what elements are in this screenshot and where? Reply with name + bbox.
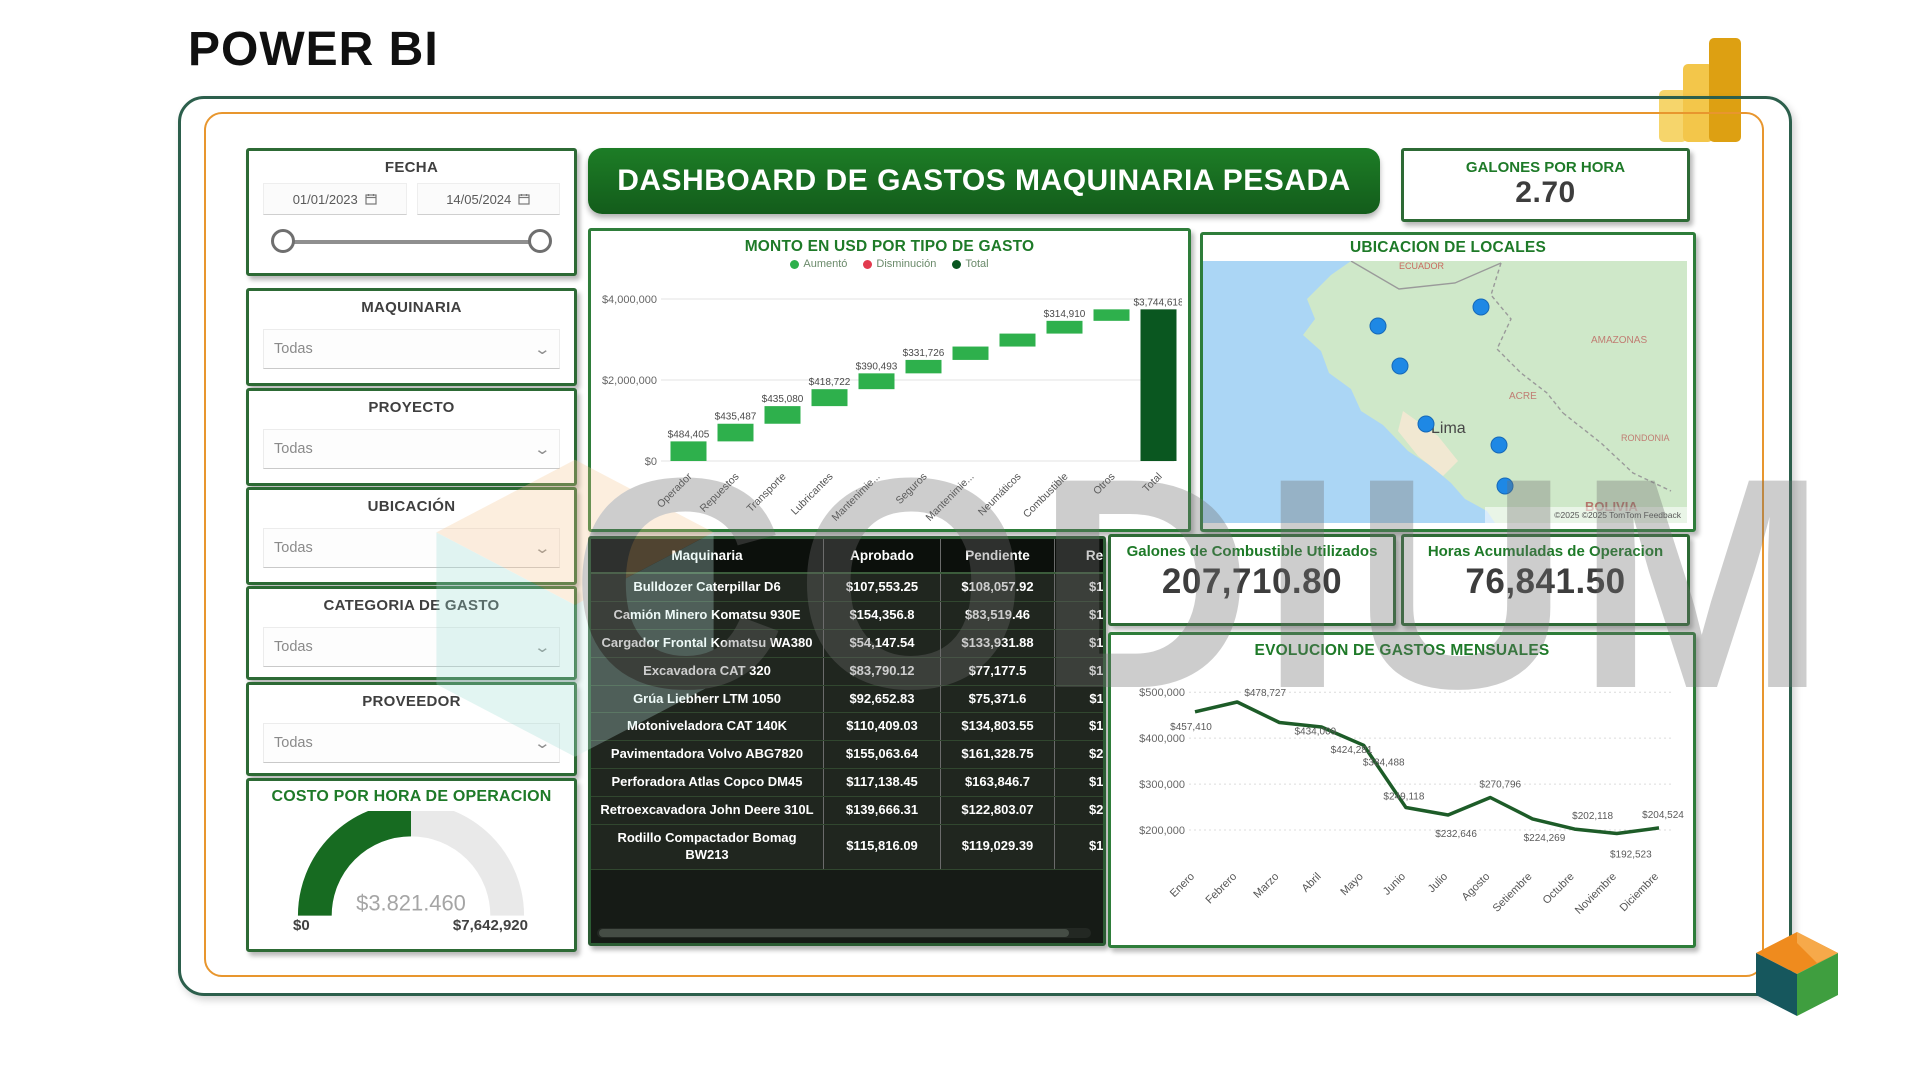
chevron-down-icon: ⌄ bbox=[534, 340, 552, 358]
table-header-rechazado[interactable]: Rechazado bbox=[1055, 539, 1107, 573]
filter-dropdown[interactable]: Todas ⌄ bbox=[263, 627, 560, 667]
waterfall-category-label: Mantenimie... bbox=[830, 471, 883, 521]
waterfall-bar[interactable] bbox=[1000, 334, 1036, 347]
filter-label: MAQUINARIA bbox=[249, 291, 574, 316]
table-cell: $110,409.03 bbox=[824, 713, 941, 741]
filter-selected-value: Todas bbox=[274, 540, 313, 556]
table-cell: $108,057.92 bbox=[941, 573, 1055, 601]
legend-item[interactable]: Aumentó bbox=[790, 258, 847, 270]
legend-dot-icon bbox=[863, 260, 872, 269]
svg-text:$270,796: $270,796 bbox=[1479, 779, 1521, 790]
table-cell: $132,062.4 bbox=[1055, 713, 1107, 741]
filter-dropdown[interactable]: Todas ⌄ bbox=[263, 429, 560, 469]
waterfall-category-label: Repuestos bbox=[698, 471, 742, 515]
filter-selected-value: Todas bbox=[274, 735, 313, 751]
line-chart: $200,000$300,000$400,000$500,000$457,410… bbox=[1111, 669, 1687, 941]
table-cell: $163,846.7 bbox=[941, 769, 1055, 797]
svg-text:$3,744,618: $3,744,618 bbox=[1133, 297, 1182, 308]
table-cell: $133,759.5 bbox=[1055, 825, 1107, 870]
kpi-galones-hora-title: GALONES POR HORA bbox=[1404, 151, 1687, 178]
waterfall-bar[interactable] bbox=[906, 360, 942, 373]
svg-text:$202,118: $202,118 bbox=[1572, 811, 1613, 822]
month-label: Mayo bbox=[1338, 871, 1366, 899]
map-location-marker[interactable] bbox=[1497, 478, 1513, 494]
date-slider-handle-left[interactable] bbox=[271, 229, 295, 253]
page-title: POWER BI bbox=[188, 22, 439, 77]
svg-text:$224,269: $224,269 bbox=[1524, 833, 1566, 844]
waterfall-bar[interactable] bbox=[1094, 309, 1130, 320]
gauge-value: $3.821.460 bbox=[356, 891, 466, 916]
table-row[interactable]: Motoniveladora CAT 140K$110,409.03$134,8… bbox=[591, 713, 1106, 741]
waterfall-category-label: Total bbox=[1140, 471, 1164, 495]
chevron-down-icon: ⌄ bbox=[534, 734, 552, 752]
svg-text:$192,523: $192,523 bbox=[1610, 849, 1652, 860]
month-label: Marzo bbox=[1251, 871, 1281, 901]
legend-item[interactable]: Total bbox=[952, 258, 988, 270]
table-cell: $83,790.12 bbox=[824, 657, 941, 685]
svg-text:$331,726: $331,726 bbox=[903, 348, 945, 359]
table-cell: $119,029.39 bbox=[941, 825, 1055, 870]
map-label-amazonas: AMAZONAS bbox=[1591, 335, 1647, 346]
end-date-input[interactable]: 14/05/2024 bbox=[417, 183, 561, 215]
table-cell: Pavimentadora Volvo ABG7820 bbox=[591, 741, 824, 769]
svg-text:$434,009: $434,009 bbox=[1295, 727, 1337, 738]
table-cell: $117,138.45 bbox=[824, 769, 941, 797]
table-cell: $208,639.3 bbox=[1055, 797, 1107, 825]
filter-card-proveedor: PROVEEDOR Todas ⌄ bbox=[246, 682, 577, 776]
table-cell: $128,293.6 bbox=[1055, 657, 1107, 685]
svg-text:$478,727: $478,727 bbox=[1244, 688, 1286, 699]
waterfall-bar[interactable] bbox=[765, 406, 801, 424]
line-chart-title: EVOLUCION DE GASTOS MENSUALES bbox=[1111, 635, 1693, 660]
map-label-ecuador: ECUADOR bbox=[1399, 261, 1445, 271]
map-attribution: ©2025 ©2025 TomTom Feedback bbox=[1554, 510, 1681, 520]
table-row[interactable]: Pavimentadora Volvo ABG7820$155,063.64$1… bbox=[591, 741, 1106, 769]
dashboard-title-banner: DASHBOARD DE GASTOS MAQUINARIA PESADA bbox=[588, 148, 1380, 214]
waterfall-title: MONTO EN USD POR TIPO DE GASTO bbox=[591, 231, 1188, 256]
svg-text:$457,410: $457,410 bbox=[1170, 722, 1212, 733]
table-header-pendiente[interactable]: Pendiente bbox=[941, 539, 1055, 573]
svg-text:$4,000,000: $4,000,000 bbox=[602, 294, 657, 306]
kpi-combustible-title: Galones de Combustible Utilizados bbox=[1111, 537, 1393, 562]
waterfall-category-label: Transporte bbox=[745, 471, 789, 515]
table-cell: Bulldozer Caterpillar D6 bbox=[591, 573, 824, 601]
svg-text:$300,000: $300,000 bbox=[1139, 779, 1185, 791]
filter-fecha-label: FECHA bbox=[249, 151, 574, 176]
date-slider-track bbox=[283, 240, 540, 244]
svg-text:$435,080: $435,080 bbox=[762, 394, 804, 405]
svg-text:$500,000: $500,000 bbox=[1139, 687, 1185, 699]
chevron-down-icon: ⌄ bbox=[534, 539, 552, 557]
waterfall-legend: AumentóDisminuciónTotal bbox=[591, 258, 1188, 270]
table-row[interactable]: Grúa Liebherr LTM 1050$92,652.83$75,371.… bbox=[591, 685, 1106, 713]
approval-table: MaquinariaAprobadoPendienteRechazadoBull… bbox=[591, 539, 1106, 870]
table-row[interactable]: Retroexcavadora John Deere 310L$139,666.… bbox=[591, 797, 1106, 825]
waterfall-bar[interactable] bbox=[718, 424, 754, 442]
dashboard-stage: POWER BI FECHA 01/01/2023 14/05/2024 MAQ… bbox=[0, 0, 1920, 1080]
month-label: Setiembre bbox=[1491, 871, 1535, 915]
month-label: Junio bbox=[1381, 871, 1408, 898]
svg-text:$484,405: $484,405 bbox=[668, 429, 710, 440]
filter-label: PROYECTO bbox=[249, 391, 574, 416]
approval-table-panel: MaquinariaAprobadoPendienteRechazadoBull… bbox=[588, 536, 1106, 946]
table-cell: $215,140.1 bbox=[1055, 741, 1107, 769]
gauge-card: COSTO POR HORA DE OPERACION $3.821.460 $… bbox=[246, 778, 577, 952]
filter-dropdown[interactable]: Todas ⌄ bbox=[263, 723, 560, 763]
filter-card-maquinaria: MAQUINARIA Todas ⌄ bbox=[246, 288, 577, 386]
waterfall-bar[interactable] bbox=[671, 441, 707, 461]
table-cell: $133,931.88 bbox=[941, 629, 1055, 657]
filter-label: PROVEEDOR bbox=[249, 685, 574, 710]
svg-text:$0: $0 bbox=[645, 456, 657, 468]
table-cell: Cargador Frontal Komatsu WA380 bbox=[591, 629, 824, 657]
svg-text:$249,118: $249,118 bbox=[1383, 791, 1424, 802]
month-label: Octubre bbox=[1541, 871, 1577, 907]
table-cell: Motoniveladora CAT 140K bbox=[591, 713, 824, 741]
kpi-horas-title: Horas Acumuladas de Operacion bbox=[1404, 537, 1687, 562]
table-cell: $115,637.2 bbox=[1055, 685, 1107, 713]
table-cell: Camión Minero Komatsu 930E bbox=[591, 601, 824, 629]
table-cell: $128,408.6 bbox=[1055, 573, 1107, 601]
map: ECUADOR AMAZONAS ACRE RONDONIA BOLIVIA L… bbox=[1203, 261, 1687, 523]
dashboard-title: DASHBOARD DE GASTOS MAQUINARIA PESADA bbox=[617, 164, 1351, 198]
filter-selected-value: Todas bbox=[274, 441, 313, 457]
table-cell: $107,553.25 bbox=[824, 573, 941, 601]
table-row[interactable]: Camión Minero Komatsu 930E$154,356.8$83,… bbox=[591, 601, 1106, 629]
gauge-chart: $3.821.460 bbox=[281, 811, 541, 919]
table-cell: $160,079.4 bbox=[1055, 769, 1107, 797]
line-chart-panel: EVOLUCION DE GASTOS MENSUALES $200,000$3… bbox=[1108, 632, 1696, 948]
svg-text:$435,487: $435,487 bbox=[715, 412, 757, 423]
kpi-combustible-value: 207,710.80 bbox=[1111, 562, 1393, 602]
table-cell: Perforadora Atlas Copco DM45 bbox=[591, 769, 824, 797]
filter-card-fecha: FECHA 01/01/2023 14/05/2024 bbox=[246, 148, 577, 276]
gauge-min: $0 bbox=[293, 917, 310, 934]
filter-label: CATEGORIA DE GASTO bbox=[249, 589, 574, 614]
start-date-input[interactable]: 01/01/2023 bbox=[263, 183, 407, 215]
table-header-maquinaria[interactable]: Maquinaria bbox=[591, 539, 824, 573]
filter-card-proyecto: PROYECTO Todas ⌄ bbox=[246, 388, 577, 486]
table-cell: $75,371.6 bbox=[941, 685, 1055, 713]
filter-dropdown[interactable]: Todas ⌄ bbox=[263, 528, 560, 568]
map-panel: UBICACION DE LOCALES ECUADOR AMAZONAS AC… bbox=[1200, 232, 1696, 532]
table-cell: $92,652.83 bbox=[824, 685, 941, 713]
kpi-galones-hora-value: 2.70 bbox=[1404, 176, 1687, 210]
month-label: Diciembre bbox=[1618, 871, 1661, 914]
svg-text:$418,722: $418,722 bbox=[809, 377, 851, 388]
calendar-icon bbox=[518, 193, 530, 205]
map-location-marker[interactable] bbox=[1418, 416, 1434, 432]
table-cell: $106,472.6 bbox=[1055, 601, 1107, 629]
table-row[interactable]: Perforadora Atlas Copco DM45$117,138.45$… bbox=[591, 769, 1106, 797]
table-row[interactable]: Rodillo Compactador Bomag BW213$115,816.… bbox=[591, 825, 1106, 870]
waterfall-category-label: Neumáticos bbox=[976, 471, 1024, 519]
waterfall-panel: MONTO EN USD POR TIPO DE GASTO AumentóDi… bbox=[588, 228, 1191, 532]
table-cell: $54,147.54 bbox=[824, 629, 941, 657]
kpi-horas-value: 76,841.50 bbox=[1404, 562, 1687, 602]
map-location-marker[interactable] bbox=[1473, 299, 1489, 315]
svg-text:$384,488: $384,488 bbox=[1363, 757, 1405, 768]
waterfall-category-label: Seguros bbox=[893, 471, 929, 507]
waterfall-bar[interactable] bbox=[812, 389, 848, 406]
waterfall-category-label: Operador bbox=[655, 470, 695, 510]
waterfall-category-label: Otros bbox=[1091, 471, 1118, 498]
table-scrollbar-thumb[interactable] bbox=[599, 929, 1069, 937]
kpi-card-galones-combustible: Galones de Combustible Utilizados 207,71… bbox=[1108, 534, 1396, 626]
table-cell: $115,816.09 bbox=[824, 825, 941, 870]
svg-text:$232,646: $232,646 bbox=[1435, 829, 1477, 840]
svg-text:$400,000: $400,000 bbox=[1139, 733, 1185, 745]
filter-card-ubicaci-n: UBICACIÓN Todas ⌄ bbox=[246, 487, 577, 585]
table-row[interactable]: Excavadora CAT 320$83,790.12$77,177.5$12… bbox=[591, 657, 1106, 685]
table-cell: $155,063.64 bbox=[824, 741, 941, 769]
date-slider-handle-right[interactable] bbox=[528, 229, 552, 253]
table-cell: $161,328.75 bbox=[941, 741, 1055, 769]
map-title: UBICACION DE LOCALES bbox=[1203, 235, 1693, 257]
table-scrollbar[interactable] bbox=[597, 928, 1091, 938]
month-label: Febrero bbox=[1204, 871, 1240, 907]
calendar-icon bbox=[365, 193, 377, 205]
month-label: Abril bbox=[1300, 871, 1324, 895]
legend-item[interactable]: Disminución bbox=[863, 258, 936, 270]
filter-selected-value: Todas bbox=[274, 341, 313, 357]
svg-text:$204,524: $204,524 bbox=[1642, 810, 1684, 821]
waterfall-chart: $0$2,000,000$4,000,000$484,405Operador$4… bbox=[591, 289, 1182, 521]
waterfall-bar[interactable] bbox=[953, 347, 989, 360]
filter-selected-value: Todas bbox=[274, 639, 313, 655]
filter-card-categoria-de-gasto: CATEGORIA DE GASTO Todas ⌄ bbox=[246, 586, 577, 680]
map-location-marker[interactable] bbox=[1491, 437, 1507, 453]
map-label-rondonia: RONDONIA bbox=[1621, 433, 1670, 443]
svg-text:$2,000,000: $2,000,000 bbox=[602, 375, 657, 387]
filter-dropdown[interactable]: Todas ⌄ bbox=[263, 329, 560, 369]
waterfall-bar[interactable] bbox=[859, 373, 895, 389]
table-cell: $134,803.55 bbox=[941, 713, 1055, 741]
legend-dot-icon bbox=[790, 260, 799, 269]
month-label: Julio bbox=[1426, 871, 1450, 895]
waterfall-category-label: Combustible bbox=[1021, 471, 1071, 521]
table-cell: $83,519.46 bbox=[941, 601, 1055, 629]
waterfall-bar[interactable] bbox=[1141, 309, 1177, 461]
codium-cube-logo-icon bbox=[1752, 930, 1842, 1018]
table-cell: Excavadora CAT 320 bbox=[591, 657, 824, 685]
table-cell: $77,177.5 bbox=[941, 657, 1055, 685]
kpi-card-horas-operacion: Horas Acumuladas de Operacion 76,841.50 bbox=[1401, 534, 1690, 626]
table-cell: $139,666.31 bbox=[824, 797, 941, 825]
table-cell: $154,356.8 bbox=[824, 601, 941, 629]
map-label-lima: Lima bbox=[1431, 420, 1466, 437]
chevron-down-icon: ⌄ bbox=[534, 440, 552, 458]
svg-text:$424,281: $424,281 bbox=[1331, 745, 1373, 756]
month-label: Noviembre bbox=[1573, 871, 1619, 917]
waterfall-bar[interactable] bbox=[1047, 321, 1083, 334]
table-row[interactable]: Bulldozer Caterpillar D6$107,553.25$108,… bbox=[591, 573, 1106, 601]
svg-text:$314,910: $314,910 bbox=[1044, 309, 1086, 320]
map-location-marker[interactable] bbox=[1370, 318, 1386, 334]
map-label-acre: ACRE bbox=[1509, 391, 1537, 402]
gauge-max: $7,642,920 bbox=[453, 917, 528, 934]
gauge-title: COSTO POR HORA DE OPERACION bbox=[249, 781, 574, 806]
table-row[interactable]: Cargador Frontal Komatsu WA380$54,147.54… bbox=[591, 629, 1106, 657]
kpi-card-galones-por-hora: GALONES POR HORA 2.70 bbox=[1401, 148, 1690, 222]
legend-dot-icon bbox=[952, 260, 961, 269]
filter-label: UBICACIÓN bbox=[249, 490, 574, 515]
start-date-value: 01/01/2023 bbox=[293, 192, 358, 207]
svg-text:$390,493: $390,493 bbox=[856, 361, 898, 372]
end-date-value: 14/05/2024 bbox=[446, 192, 511, 207]
table-cell: $105,660.9 bbox=[1055, 629, 1107, 657]
chevron-down-icon: ⌄ bbox=[534, 638, 552, 656]
month-label: Agosto bbox=[1460, 871, 1493, 904]
table-cell: Grúa Liebherr LTM 1050 bbox=[591, 685, 824, 713]
waterfall-category-label: Mantenimie... bbox=[924, 471, 977, 521]
table-header-aprobado[interactable]: Aprobado bbox=[824, 539, 941, 573]
table-cell: $122,803.07 bbox=[941, 797, 1055, 825]
svg-text:$200,000: $200,000 bbox=[1139, 825, 1185, 837]
table-cell: Rodillo Compactador Bomag BW213 bbox=[591, 825, 824, 870]
table-cell: Retroexcavadora John Deere 310L bbox=[591, 797, 824, 825]
waterfall-category-label: Lubricantes bbox=[789, 471, 836, 518]
map-location-marker[interactable] bbox=[1392, 358, 1408, 374]
month-label: Enero bbox=[1168, 871, 1197, 900]
